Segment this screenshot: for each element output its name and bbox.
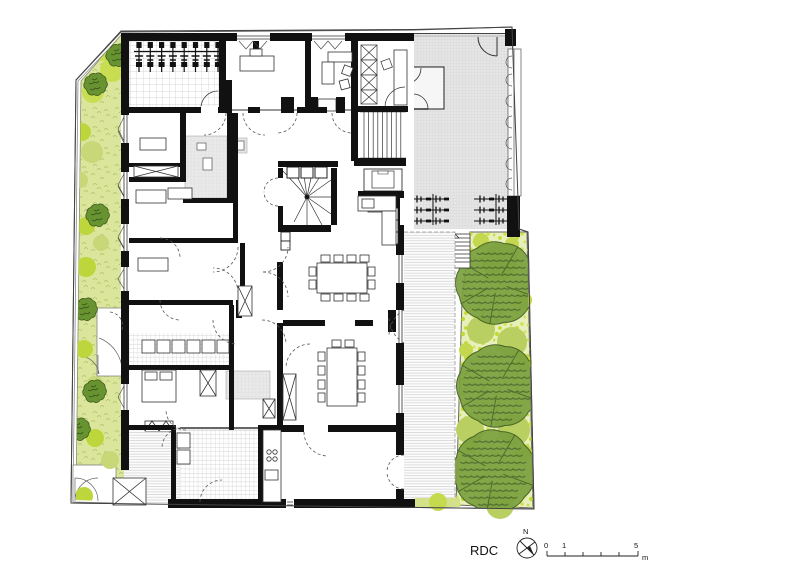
svg-text:RDC: RDC <box>470 543 498 558</box>
svg-text:m: m <box>642 553 648 562</box>
svg-text:N: N <box>523 527 528 536</box>
svg-text:1: 1 <box>562 541 566 550</box>
svg-text:0: 0 <box>544 541 548 550</box>
svg-text:5: 5 <box>634 541 638 550</box>
